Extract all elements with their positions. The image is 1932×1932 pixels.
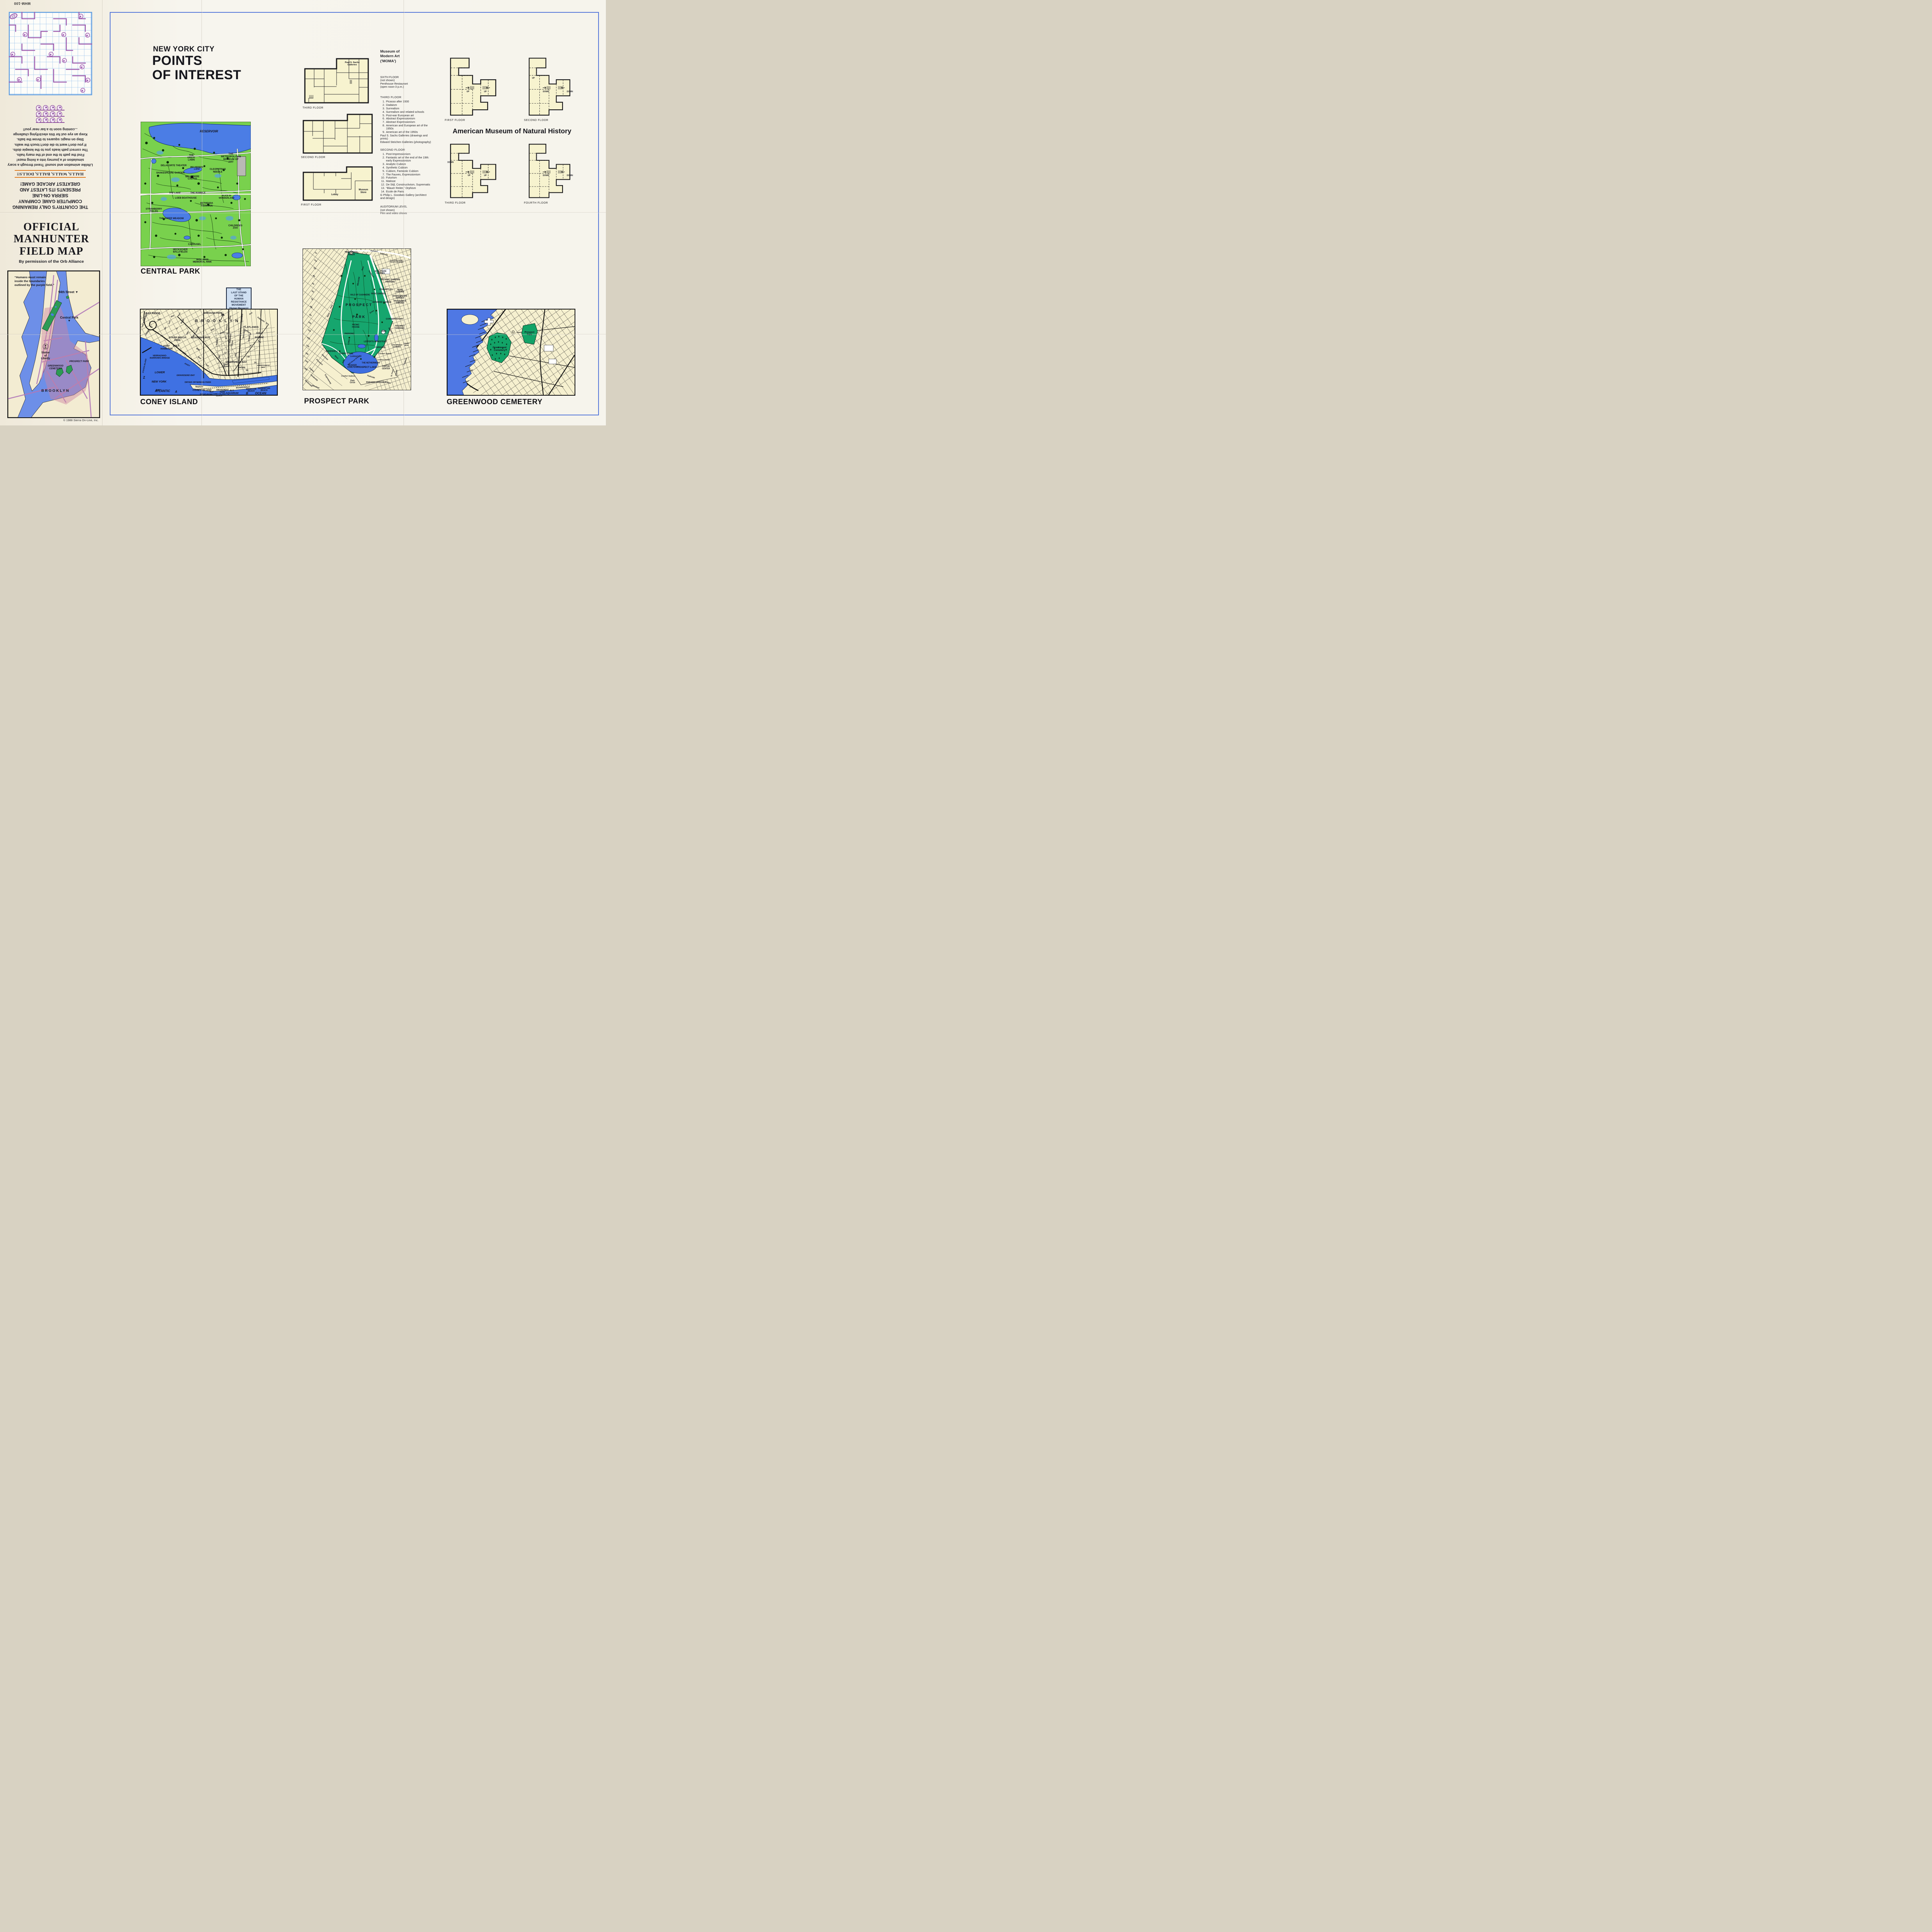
map-label: LEFFERTS HOMESTEAD — [364, 341, 386, 343]
text-line: SIERRA ON-LINE — [12, 192, 88, 198]
moma-first-floor-plan: LobbyMuseum Store — [301, 165, 374, 202]
text-line: THE COUNTRY'S ONLY REMAINING — [12, 204, 88, 209]
map-label: DOWN — [567, 175, 573, 177]
map-label: ATLANTIC — [155, 390, 170, 393]
map-label: CAROUSEL — [188, 243, 201, 246]
map-label: TRIUMPHAL ARCH — [345, 251, 358, 256]
prospect-park-caption: PROSPECT PARK — [304, 397, 369, 406]
amnh-second-floor-plan: UPDOWNDOWN — [524, 56, 576, 118]
map-label: TENNIS HOUSE — [339, 353, 354, 355]
map-label: SHORE — [238, 367, 245, 370]
map-label: PROSPECT LAKE — [357, 366, 376, 368]
text-line: Keep an eye out for this electrifying ch… — [8, 132, 93, 137]
ad-banner: HALLS, WALLS, BALLS, DOLLS!! — [15, 170, 86, 178]
map-label: Museum Store — [359, 189, 368, 194]
map-label: VALE OF CASHMERE — [350, 294, 370, 296]
moma-third-extra: Paul S. Sachs Galleries (drawings and pr… — [380, 134, 432, 144]
moma-first-floor-label: FIRST FLOOR — [301, 204, 321, 206]
text-line: The correct path leads you to the kewpie… — [8, 147, 93, 152]
map-label: Greenwood Cemetery — [493, 346, 507, 352]
map-label: U — [224, 352, 226, 354]
map-label: Lobby — [331, 194, 338, 196]
ad-headline: THE COUNTRY'S ONLY REMAININGCOMPUTER GAM… — [12, 180, 88, 209]
map-label: LOWER — [155, 371, 165, 374]
map-label: SHAKESPEARE GARDEN — [156, 172, 184, 174]
amnh-first-floor-label: FIRST FLOOR — [445, 119, 465, 122]
moma-second-list: 1.Post-Impressionism2.Fantastic art of t… — [380, 153, 432, 193]
text-line: Step on magic squares to throw the balls… — [8, 137, 93, 142]
moma-third-floor-label: THIRD FLOOR — [303, 107, 323, 109]
map-label: PROSPECT PARK — [69, 361, 89, 363]
map-label: FLATLANDS — [244, 326, 259, 329]
map-label: CRABAPPLES — [379, 289, 393, 291]
map-label: 14 — [254, 362, 256, 364]
moma-third-heading: THIRD FLOOR — [380, 96, 432, 99]
floor-plan-graphic — [445, 142, 503, 200]
moma-title: Museum of Modern Art ('MOMA') — [380, 49, 432, 64]
map-label: Statue of Liberty — [41, 352, 50, 361]
list-item: 4.Synthetic Cubism — [380, 166, 432, 169]
floor-plan-graphic — [524, 56, 576, 118]
amnh-third-floor-plan: DOWNUPUP — [445, 142, 503, 200]
map-label: UP — [467, 91, 469, 93]
list-item: 3.Surrealism — [380, 107, 432, 110]
amnh-fourth-floor-plan: DOWNDOWN — [524, 142, 576, 200]
map-label: 18 — [247, 356, 250, 359]
poi-title-line1: POINTS — [152, 54, 202, 67]
moma-third-list: 1.Picasso after 19302.Dadaism3.Surrealis… — [380, 100, 432, 134]
text-line: OF THE — [227, 294, 251, 298]
moma-second-floor-label: SECOND FLOOR — [301, 156, 325, 159]
map-label: FORT HAMILTON — [161, 345, 173, 350]
text-line: ...coming soon to a bar near you!! — [8, 127, 93, 132]
manhattan-boundary-map: “Humans must remain inside the boundarie… — [7, 270, 100, 418]
map-label: SHAKESPEARE GARDEN — [393, 296, 407, 300]
list-item: 5.Cubism, Fantastic Cubism — [380, 170, 432, 173]
map-label: DYKER BEACH PARK — [169, 337, 186, 342]
building-footprint — [549, 359, 556, 364]
text-line: LAST STAND — [227, 291, 251, 294]
map-label: PICNIC HOUSE — [352, 324, 360, 329]
field-map-title: OFFICIALMANHUNTERFIELD MAP — [5, 221, 98, 257]
map-label: PARADE GROUNDS — [366, 382, 386, 384]
text-line: MANHUNTER — [5, 233, 98, 245]
greenwood-caption: GREENWOOD CEMETERY — [447, 398, 543, 406]
text-line: RESISTANCE — [227, 301, 251, 304]
map-label: CHILDREN'S GARDEN — [390, 344, 404, 348]
map-label: ALICE IN WONDERLAND — [214, 195, 239, 200]
map-label: JAPANESE GARDEN — [372, 301, 391, 303]
ad-body: Lifelike animation and sound! Travel thr… — [8, 127, 93, 168]
map-label: N — [221, 314, 224, 318]
map-label: CAROUSEL — [375, 347, 386, 349]
map-label: DOWN — [447, 162, 454, 163]
map-label: Ave. — [218, 354, 221, 359]
text-line: THE — [227, 288, 251, 291]
map-label: NEW YORK — [151, 381, 166, 384]
map-label: Comfort Station — [377, 359, 390, 361]
moma-second-extra: G Philip L. Goodwin Gallery (architect a… — [380, 194, 432, 200]
moma-auditorium: AUDITORIUM LEVEL(not shown)Film and vide… — [380, 205, 432, 215]
map-label: RESERVOIR — [200, 130, 218, 134]
map-label: THE RAMBLE — [190, 192, 206, 194]
moma-text-column: Museum of Modern Art ('MOMA') SIXTH FLOO… — [380, 49, 432, 215]
map-label: BELVEDERE CASTLE — [185, 175, 199, 180]
map-label: B — [246, 392, 248, 395]
moma-third-floor-plan: Paul S. Sachs Galleries — [303, 56, 371, 105]
amnh-third-floor-label: THIRD FLOOR — [445, 202, 466, 204]
text-line: GREATEST ARCADE GAME! — [12, 180, 88, 186]
text-line: HUMAN — [227, 298, 251, 301]
map-label: THE GREAT LAWN — [187, 154, 196, 162]
text-line: (open noon-3 p.m.) — [380, 85, 432, 88]
map-label: 24 — [246, 370, 248, 372]
text-line: PRESENTS ITS LATEST AND — [12, 186, 88, 192]
amnh-second-floor-label: SECOND FLOOR — [524, 119, 548, 122]
text-line: MOVEMENT — [227, 304, 251, 307]
map-label: X — [241, 359, 242, 361]
map-label: EASTERN PKWY-BKLYN MUSEUM — [390, 260, 404, 263]
map-label: DRYER OFFERMAN PARK — [185, 382, 211, 384]
map-label: UP — [468, 175, 471, 177]
list-item: 14.Ecole de Paris — [380, 190, 432, 193]
map-label: THE NETHERMEAD — [362, 362, 380, 364]
map-label: SHEEPSHEAD BAY — [226, 361, 247, 364]
text-line: FIELD MAP — [5, 245, 98, 257]
floor-plan-graphic — [445, 56, 503, 118]
amnh-first-floor-plan: UPUP — [445, 56, 503, 118]
map-label: St. — [250, 344, 252, 347]
map-label: Shell Road — [223, 364, 228, 368]
map-label: BOTANIC GARDEN PARKING — [381, 279, 400, 284]
maze-grid — [8, 11, 95, 96]
map-label: LOEB BOATHOUSE — [175, 197, 197, 199]
text-line: COMPUTER GAME COMPANY — [12, 198, 88, 204]
map-label: A — [175, 391, 177, 394]
map-label: ZOO — [381, 331, 386, 333]
map-label: ROSE GARDEN — [371, 293, 386, 295]
map-label: UP — [484, 175, 487, 177]
moma-second-heading: SECOND FLOOR — [380, 148, 432, 152]
map-label: OCEAN — [255, 392, 266, 395]
map-label: BANDSHELL — [326, 351, 338, 353]
text-line: Find the path to the end of the many hal… — [8, 152, 93, 157]
amnh-fourth-floor-label: FOURTH FLOOR — [524, 202, 548, 204]
maze-puzzle-panel — [8, 11, 95, 96]
map-label: CONEY ISLAND BEACH — [213, 393, 225, 397]
map-label: Comfort Stations — [341, 376, 355, 378]
text-line: OFFICIAL — [5, 221, 98, 233]
map-label: UP — [484, 91, 487, 93]
product-code: MHM-100 — [14, 2, 31, 5]
field-map-permission: By permission of the Orb Alliance — [5, 259, 98, 264]
greenwood-cemetery-map: Greenwood CemeteryProspect Park — [447, 309, 575, 396]
floor-plan-graphic — [524, 142, 576, 200]
list-item: 13.“Blauer Reiter,” Orphism — [380, 187, 432, 190]
map-label: BOROUGH PARK — [203, 312, 223, 315]
map-label: Comfort Station — [378, 353, 391, 355]
sign-lines: THELAST STANDOF THEHUMANRESISTANCEMOVEME… — [227, 288, 251, 307]
map-label: PROSPECT — [345, 303, 372, 307]
map-label: UP — [532, 77, 535, 79]
map-label: SCULPTURE GARDEN — [375, 271, 387, 275]
central-park-caption: CENTRAL PARK — [141, 267, 200, 276]
manhunter-field-map-scan: MHM-100 — [0, 0, 606, 425]
map-label: GOLF — [173, 345, 179, 347]
map-label: SHEEPSHEAD BAY — [257, 365, 270, 369]
fold-crease-horizontal — [0, 334, 606, 335]
text-line: simulation of a journey into a living ma… — [8, 157, 93, 162]
map-label: GREENWOOD CEMETERY — [48, 365, 63, 370]
list-item: 4.Surrealism and related schools — [380, 111, 432, 114]
amnh-title: American Museum of Natural History — [447, 127, 577, 135]
map-label: CLEOPATRA'S NEEDLE — [210, 168, 226, 173]
coney-island-map: BAY RIDGETHE NARROWSSHORE86th4thAve.Fort… — [140, 309, 278, 396]
copyright: © 1988 Sierra On-Line, Inc. — [44, 418, 99, 422]
map-label: VERRAZANO- NARROWS BRIDGE — [150, 355, 170, 360]
map-label: Park Circle — [350, 380, 355, 384]
central-park-map: RESERVOIRTHE METROPOLITAN MUSEUM OF ARTT… — [141, 122, 251, 266]
map-label: CHILDREN'S ZOO — [228, 225, 243, 230]
greenwood-graphic — [447, 310, 575, 395]
map-label: Central Park ▼ — [60, 316, 78, 323]
map-label: Z — [143, 376, 145, 380]
text-line: Lifelike animation and sound! Travel thr… — [8, 162, 93, 167]
map-label: THE LAKE — [169, 192, 180, 194]
sierra-ad-upside-down: THE COUNTRY'S ONLY REMAININGCOMPUTER GAM… — [6, 100, 94, 209]
map-label: HECKSCHER BALLFIELDS — [173, 248, 188, 253]
text-line: Paul S. Sachs Galleries (drawings and pr… — [380, 134, 432, 141]
fold-crease-horizontal — [0, 212, 606, 213]
building-footprint — [544, 345, 553, 351]
map-label: CONSERVATORY — [386, 318, 403, 321]
map-label: PARK — [352, 315, 366, 319]
map-label: VISITOR CENTER — [382, 366, 390, 370]
map-label: GRAVESEND BAY — [177, 375, 195, 377]
text-line: G Philip L. Goodwin Gallery (architect a… — [380, 194, 432, 200]
coney-island-caption: CONEY ISLAND — [140, 398, 198, 406]
map-label: THE SHEEP MEADOW — [159, 217, 184, 219]
map-label: DOWN — [543, 91, 549, 93]
text-line: If you don't want to die don't touch the… — [8, 142, 93, 147]
list-item: 2.Fantastic art of the end of the 19th: … — [380, 156, 432, 163]
map-label: BROOKLYN — [41, 389, 70, 393]
manhattan-map-graphic — [8, 271, 99, 417]
list-item: 8.American and European art of the 1950s — [380, 124, 432, 131]
nyc-kicker: NEW YORK CITY — [153, 45, 214, 54]
prospect-park-map: TRIUMPHAL ARCHEasternParkwayEASTERN PKWY… — [303, 248, 411, 390]
map-label: 94th Street ▼ — [58, 291, 78, 294]
island-land — [461, 315, 478, 325]
kewpie-dolls-icon — [35, 105, 65, 124]
map-label: Paul S. Sachs Galleries — [345, 61, 359, 66]
moma-second-floor-plan — [301, 113, 374, 155]
map-label: DELACORTE THEATER — [161, 165, 187, 167]
poi-title-line2: OF INTEREST — [152, 68, 241, 82]
map-label: N.Y. AQUARIUM — [226, 390, 238, 395]
map-label: DOWN — [567, 91, 573, 93]
map-label: THE METROPOLITAN MUSEUM OF ART — [221, 152, 241, 163]
text-line: Edward Steichen Galleries (photography) — [380, 141, 432, 144]
map-label: DOWN — [543, 175, 549, 177]
map-label: MARINE — [255, 337, 264, 339]
moma-sixth-floor: SIXTH FLOOR(not shown)Penthouse Restaura… — [380, 76, 432, 88]
boundary-quote: “Humans must remain inside the boundarie… — [15, 276, 65, 287]
